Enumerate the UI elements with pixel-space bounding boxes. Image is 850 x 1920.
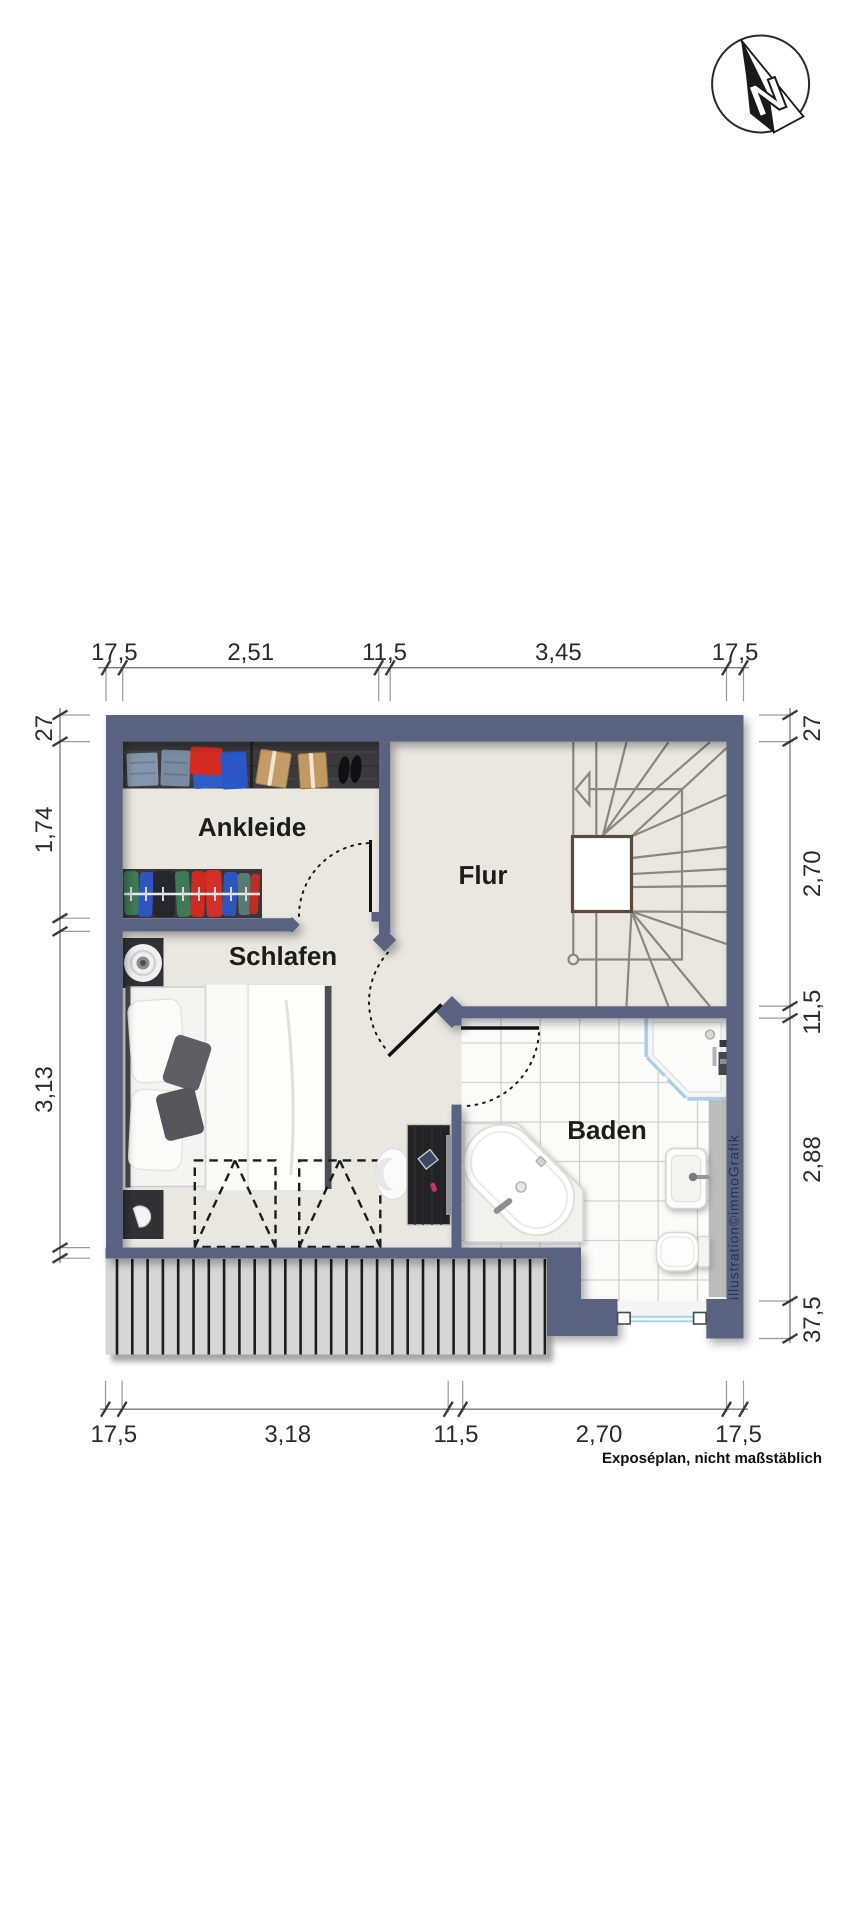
svg-text:2,51: 2,51 <box>227 639 274 666</box>
svg-text:2,70: 2,70 <box>799 850 826 897</box>
svg-text:17,5: 17,5 <box>715 1421 762 1448</box>
svg-text:3,13: 3,13 <box>31 1066 58 1113</box>
svg-text:11,5: 11,5 <box>362 639 407 666</box>
svg-text:27: 27 <box>31 715 58 742</box>
svg-text:2,88: 2,88 <box>799 1136 826 1183</box>
svg-text:Ankleide: Ankleide <box>198 812 306 842</box>
svg-text:17,5: 17,5 <box>90 1421 137 1448</box>
svg-text:17,5: 17,5 <box>712 639 759 666</box>
svg-text:Baden: Baden <box>567 1115 646 1145</box>
svg-text:illustration©immoGrafik: illustration©immoGrafik <box>726 1134 742 1300</box>
svg-text:3,18: 3,18 <box>264 1421 311 1448</box>
svg-text:3,45: 3,45 <box>535 639 582 666</box>
svg-text:17,5: 17,5 <box>91 639 138 666</box>
svg-text:37,5: 37,5 <box>799 1296 826 1343</box>
svg-text:1,74: 1,74 <box>31 807 58 854</box>
svg-text:Exposéplan, nicht maßstäblich: Exposéplan, nicht maßstäblich <box>602 1450 822 1467</box>
svg-text:11,5: 11,5 <box>434 1421 479 1448</box>
svg-text:Flur: Flur <box>458 860 507 890</box>
svg-text:11,5: 11,5 <box>799 990 826 1035</box>
svg-text:2,70: 2,70 <box>576 1421 623 1448</box>
svg-text:Schlafen: Schlafen <box>229 941 337 971</box>
svg-text:27: 27 <box>799 715 826 742</box>
